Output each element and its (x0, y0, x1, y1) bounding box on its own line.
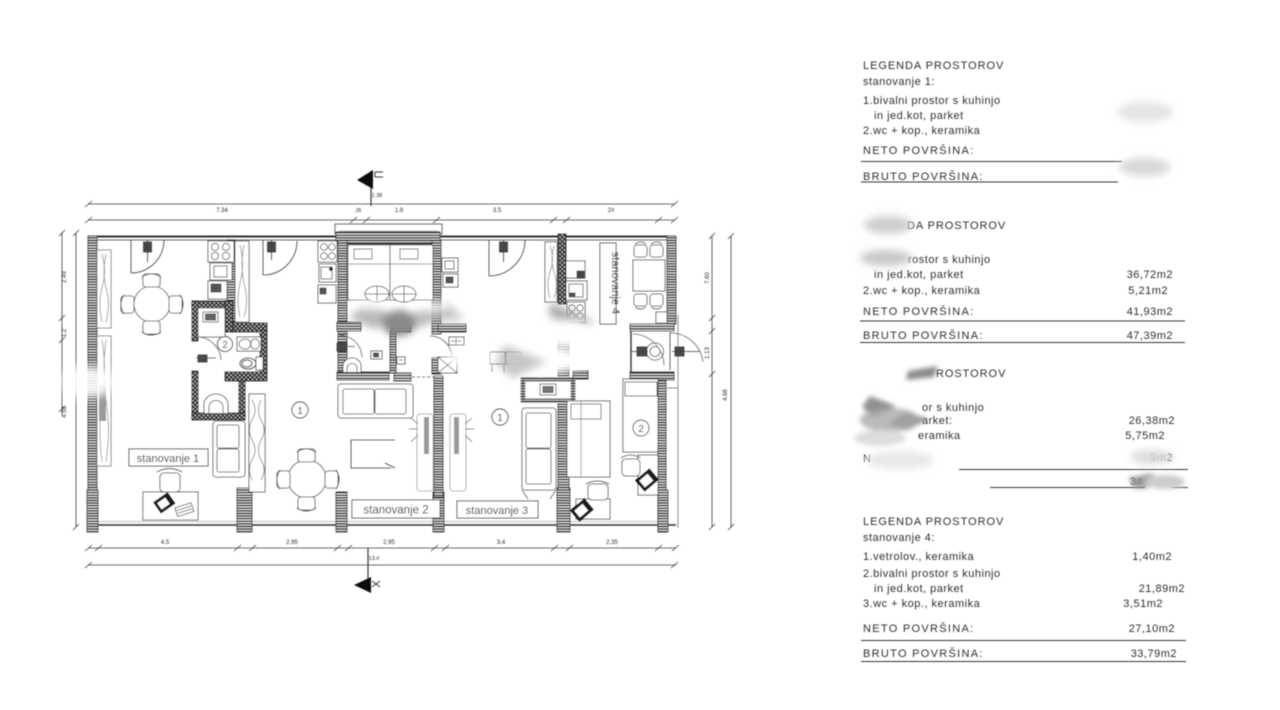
svg-text:stanovanje 3: stanovanje 3 (466, 505, 528, 517)
svg-text:stanovanje 2: stanovanje 2 (363, 505, 428, 517)
svg-text:2: 2 (222, 340, 228, 351)
svg-text:rostor s kuhinjo: rostor s kuhinjo (908, 254, 991, 266)
svg-text:41,93m2: 41,93m2 (1127, 306, 1173, 318)
svg-text:in jed.kot, parket: in jed.kot, parket (874, 269, 964, 281)
svg-text:2#: 2# (608, 208, 615, 214)
svg-text:21,89m2: 21,89m2 (1139, 583, 1185, 595)
svg-text:stanovanje 1: stanovanje 1 (137, 453, 199, 465)
svg-text:stanovanje 4:: stanovanje 4: (863, 532, 935, 544)
svg-text:2.95: 2.95 (383, 540, 395, 546)
svg-text:NETO POVRŠINA:: NETO POVRŠINA: (863, 305, 975, 318)
svg-text:4.66: 4.66 (723, 389, 729, 401)
svg-text:stanovanje 1:: stanovanje 1: (863, 76, 935, 88)
svg-text:13.#: 13.# (369, 556, 381, 562)
svg-text:2.wc + kop., keramika: 2.wc + kop., keramika (863, 285, 981, 297)
svg-text:in jed.kot, parket: in jed.kot, parket (874, 583, 964, 595)
svg-text:1: 1 (497, 413, 503, 424)
svg-text:3.4: 3.4 (497, 540, 506, 546)
svg-text:1.vetrolov., keramika: 1.vetrolov., keramika (863, 551, 975, 563)
svg-text:2.wc + kop., keramika: 2.wc + kop., keramika (863, 125, 981, 137)
svg-text:2.bivalni prostor s kuhinjo: 2.bivalni prostor s kuhinjo (863, 568, 1001, 580)
svg-text:DA PROSTOROV: DA PROSTOROV (907, 220, 1006, 232)
svg-text:1.8: 1.8 (395, 208, 404, 214)
svg-text:in jed.kot, parket: in jed.kot, parket (874, 110, 964, 122)
svg-text:NETO POVRŠINA:: NETO POVRŠINA: (863, 144, 975, 157)
svg-text:NETO POVRŠINA:: NETO POVRŠINA: (863, 622, 975, 635)
svg-text:BRUTO POVRŠINA:: BRUTO POVRŠINA: (863, 170, 984, 183)
svg-text:BRUTO POVRŠINA:: BRUTO POVRŠINA: (863, 647, 984, 660)
svg-text:3.5: 3.5 (493, 208, 502, 214)
svg-text:27,10m2: 27,10m2 (1129, 623, 1175, 635)
svg-text:1: 1 (297, 406, 303, 417)
svg-text:47,39m2: 47,39m2 (1127, 330, 1173, 342)
svg-text:2.95: 2.95 (286, 540, 298, 546)
svg-text:5,21m2: 5,21m2 (1128, 285, 1168, 297)
svg-text:2: 2 (638, 424, 644, 435)
svg-text:2.35: 2.35 (606, 540, 618, 546)
svg-text:3.wc + kop., keramika: 3.wc + kop., keramika (863, 598, 981, 610)
svg-text:BRUTO POVRŠINA:: BRUTO POVRŠINA: (863, 329, 984, 342)
svg-text:36,72m2: 36,72m2 (1127, 269, 1173, 281)
svg-text:stanovanje 4: stanovanje 4 (609, 252, 621, 314)
svg-text:1.13: 1.13 (705, 347, 711, 359)
svg-text:3,51m2: 3,51m2 (1123, 598, 1163, 610)
svg-text:7.60: 7.60 (705, 272, 711, 284)
svg-text:LEGENDA PROSTOROV: LEGENDA PROSTOROV (863, 60, 1004, 72)
svg-text:or s kuhinjo: or s kuhinjo (922, 402, 984, 414)
svg-text:2.49: 2.49 (62, 271, 68, 283)
svg-text:1.38: 1.38 (372, 193, 383, 199)
svg-text:ROSTOROV: ROSTOROV (936, 368, 1006, 380)
svg-text:1.2: 1.2 (62, 328, 68, 337)
svg-text:4.58: 4.58 (62, 406, 68, 418)
svg-text:1.bivalni prostor s kuhinjo: 1.bivalni prostor s kuhinjo (863, 95, 1001, 107)
svg-text:26,38m2: 26,38m2 (1129, 415, 1175, 427)
svg-text:4.5: 4.5 (161, 540, 170, 546)
svg-text:33,79m2: 33,79m2 (1131, 648, 1177, 660)
svg-text:eramika: eramika (918, 430, 961, 442)
svg-text:.35: .35 (355, 208, 362, 214)
svg-text:7.34: 7.34 (216, 208, 228, 214)
svg-text:LEGENDA PROSTOROV: LEGENDA PROSTOROV (863, 516, 1004, 528)
svg-text:5,75m2: 5,75m2 (1125, 430, 1165, 442)
svg-text:1,40m2: 1,40m2 (1132, 551, 1172, 563)
svg-text:arket:: arket: (922, 415, 953, 427)
